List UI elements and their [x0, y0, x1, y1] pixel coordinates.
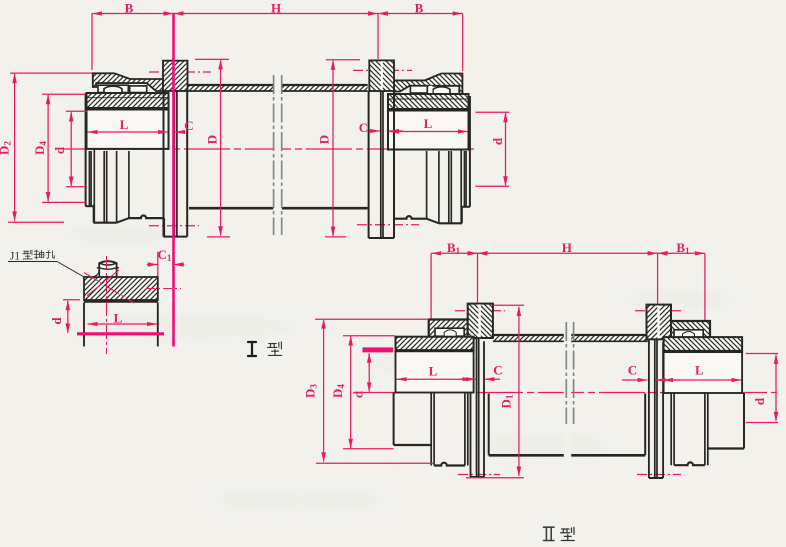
- svg-text:D: D: [205, 135, 220, 144]
- svg-text:C: C: [184, 118, 193, 133]
- svg-text:L: L: [424, 116, 433, 131]
- svg-text:d: d: [351, 390, 366, 398]
- svg-text:C1: C1: [158, 247, 172, 263]
- svg-text:B1: B1: [447, 240, 461, 256]
- svg-text:D3: D3: [303, 384, 319, 398]
- svg-text:C: C: [493, 363, 502, 378]
- svg-text:D1: D1: [499, 394, 515, 408]
- svg-text:D4: D4: [32, 141, 48, 155]
- svg-text:L: L: [695, 363, 704, 378]
- svg-text:L: L: [429, 364, 438, 379]
- svg-text:D: D: [317, 135, 332, 144]
- svg-text:H: H: [271, 1, 281, 16]
- svg-text:L: L: [120, 117, 129, 132]
- svg-text:d: d: [52, 146, 67, 154]
- svg-text:B: B: [415, 1, 424, 16]
- svg-text:B: B: [125, 1, 134, 16]
- svg-text:D2: D2: [0, 141, 13, 155]
- svg-text:B1: B1: [676, 240, 690, 256]
- svg-text:H: H: [562, 240, 572, 255]
- svg-text:C: C: [628, 363, 637, 378]
- svg-text:d: d: [49, 317, 64, 325]
- svg-text:C: C: [359, 120, 368, 135]
- svg-text:d: d: [490, 137, 505, 145]
- svg-text:J1: J1: [10, 251, 20, 263]
- svg-text:L: L: [114, 311, 123, 326]
- svg-text:d: d: [752, 397, 767, 405]
- svg-text:D4: D4: [330, 384, 346, 398]
